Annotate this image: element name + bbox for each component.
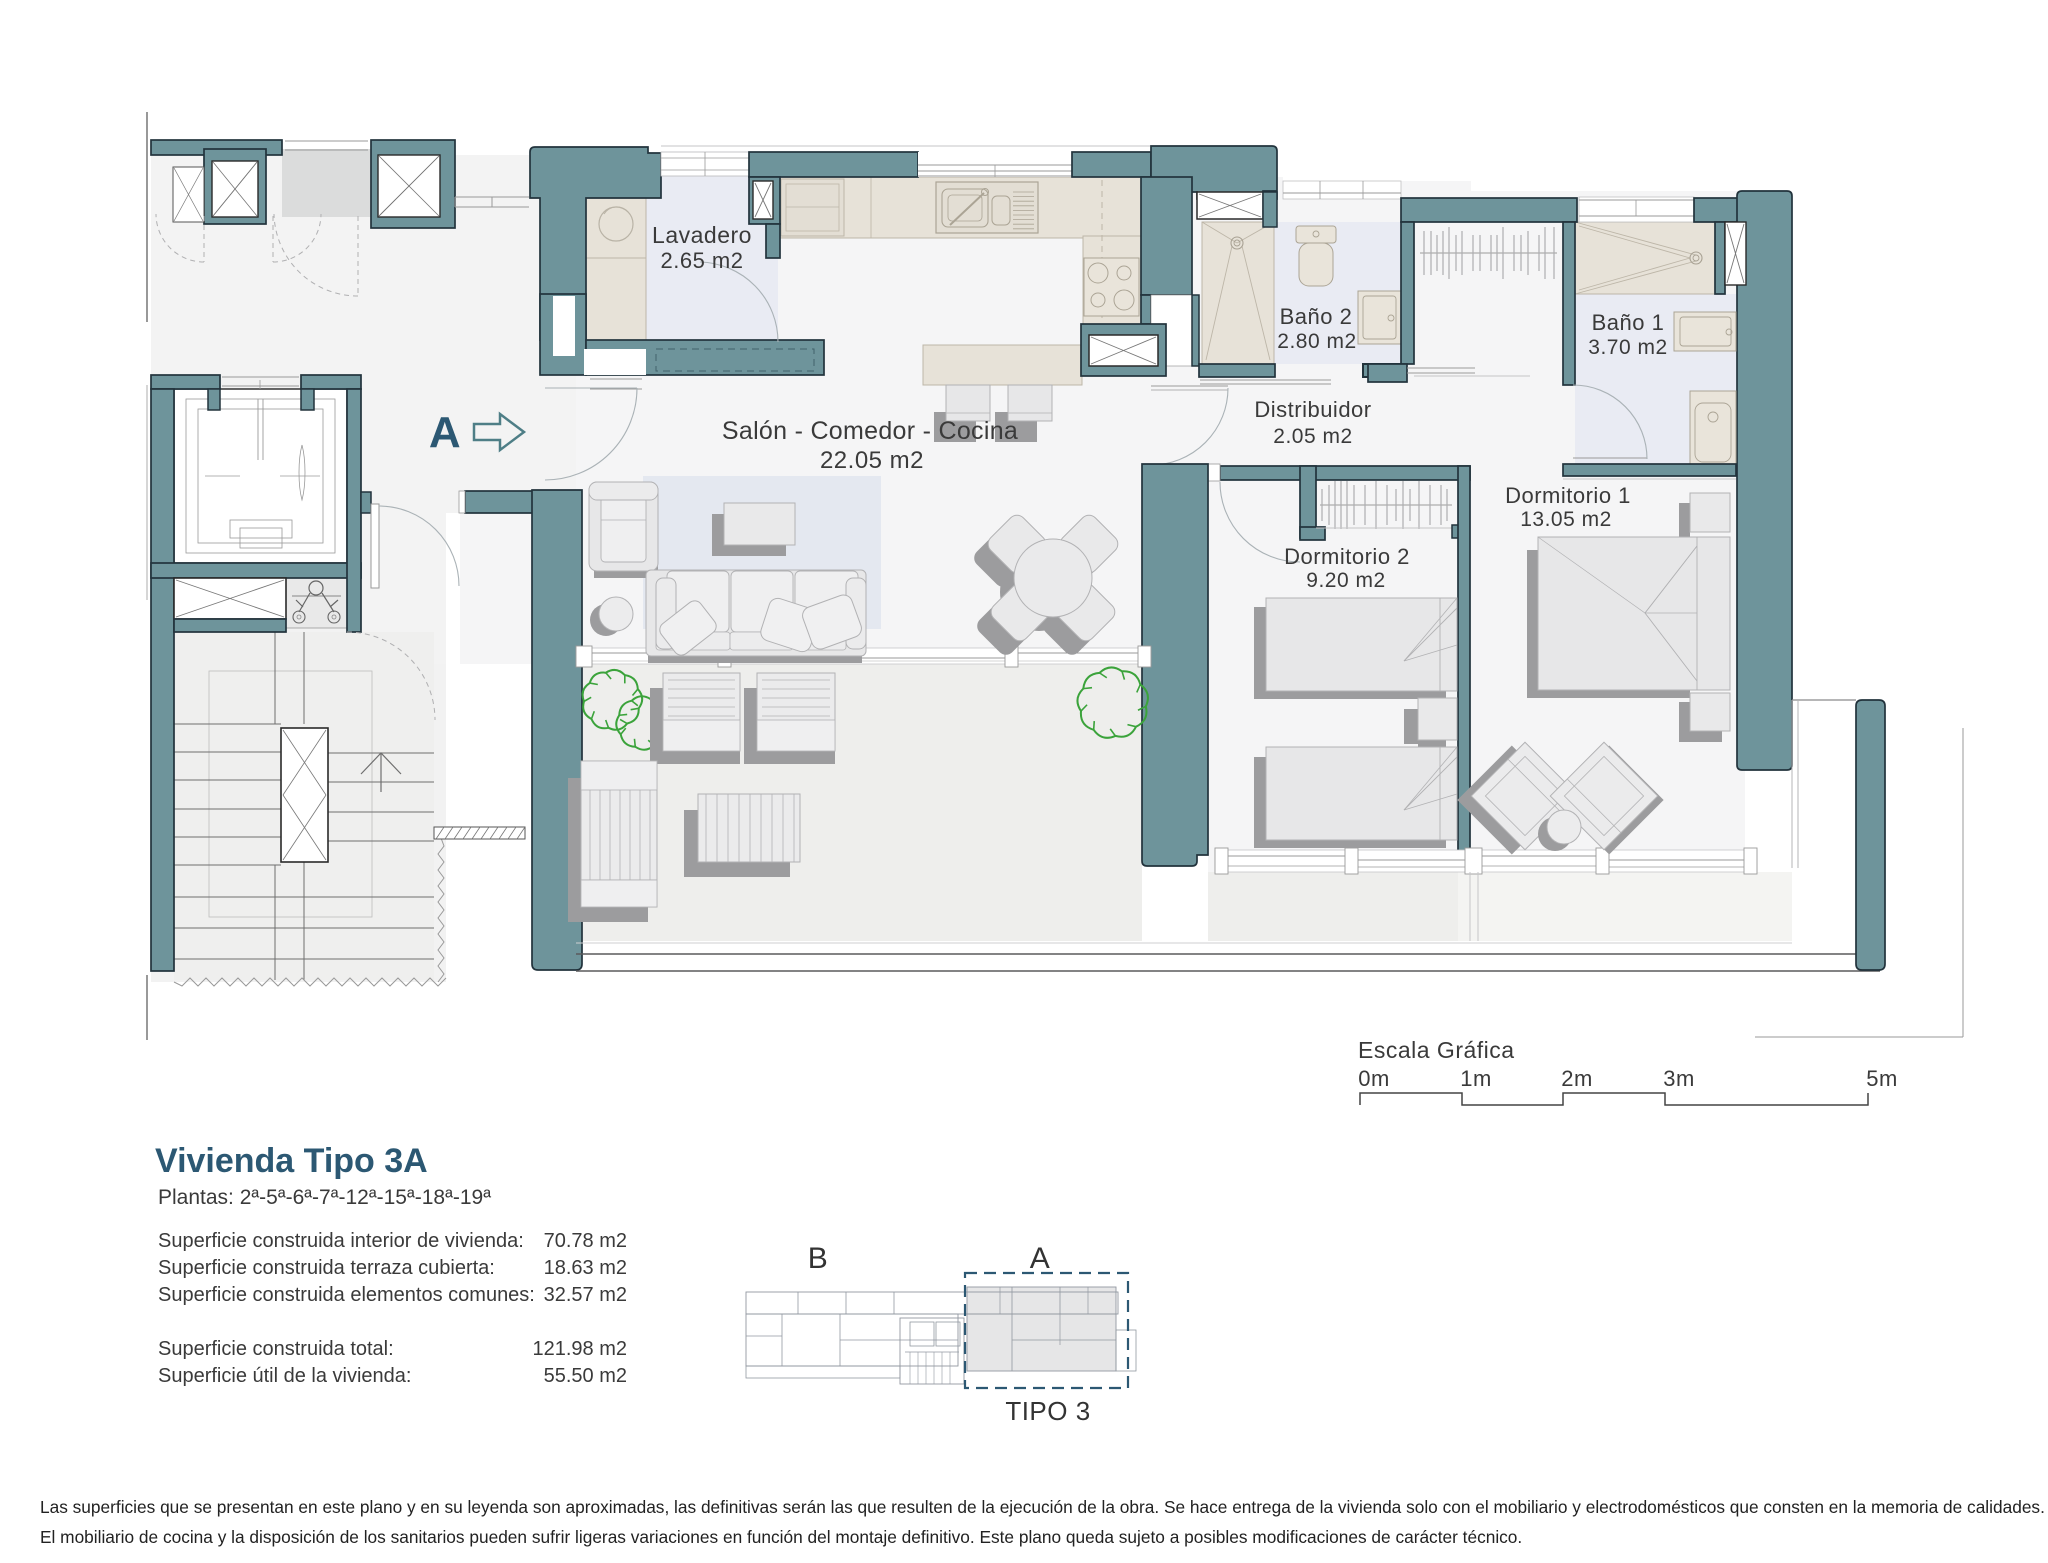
svg-text:Baño 1: Baño 1: [1592, 310, 1665, 335]
svg-text:Baño 2: Baño 2: [1280, 304, 1353, 329]
svg-text:Superficie construida total:: Superficie construida total:: [158, 1338, 394, 1360]
svg-text:2.65 m2: 2.65 m2: [661, 248, 744, 273]
svg-text:Superficie construida interior: Superficie construida interior de vivien…: [158, 1230, 524, 1252]
svg-text:Las superficies que se present: Las superficies que se presentan en este…: [40, 1497, 2045, 1517]
svg-text:2.05 m2: 2.05 m2: [1273, 425, 1352, 448]
svg-text:A: A: [429, 408, 461, 457]
svg-text:TIPO 3: TIPO 3: [1005, 1396, 1090, 1426]
svg-text:18.63 m2: 18.63 m2: [544, 1257, 627, 1279]
svg-text:9.20 m2: 9.20 m2: [1306, 569, 1385, 592]
svg-text:Distribuidor: Distribuidor: [1254, 397, 1371, 422]
svg-text:70.78 m2: 70.78 m2: [544, 1230, 627, 1252]
svg-text:Superficie construida terraza: Superficie construida terraza cubierta:: [158, 1257, 495, 1279]
svg-text:Plantas: 2ª-5ª-6ª-7ª-12ª-15ª-1: Plantas: 2ª-5ª-6ª-7ª-12ª-15ª-18ª-19ª: [158, 1186, 491, 1209]
svg-text:2.80 m2: 2.80 m2: [1277, 330, 1356, 353]
svg-text:B: B: [808, 1242, 829, 1275]
svg-text:5m: 5m: [1866, 1066, 1898, 1091]
svg-text:3.70 m2: 3.70 m2: [1588, 336, 1667, 359]
svg-text:Dormitorio 2: Dormitorio 2: [1284, 544, 1410, 569]
svg-text:22.05 m2: 22.05 m2: [820, 447, 924, 474]
svg-text:El mobiliario de cocina y la d: El mobiliario de cocina y la disposición…: [40, 1527, 1522, 1547]
svg-text:Superficie construida elemento: Superficie construida elementos comunes:: [158, 1284, 535, 1306]
svg-text:3m: 3m: [1663, 1066, 1695, 1091]
svg-text:32.57 m2: 32.57 m2: [544, 1284, 627, 1306]
svg-text:55.50 m2: 55.50 m2: [544, 1365, 627, 1387]
svg-text:Vivienda Tipo 3A: Vivienda Tipo 3A: [155, 1142, 428, 1180]
svg-text:A: A: [1030, 1242, 1051, 1275]
svg-text:0m: 0m: [1358, 1066, 1390, 1091]
svg-text:121.98 m2: 121.98 m2: [532, 1338, 627, 1360]
svg-text:Lavadero: Lavadero: [652, 222, 752, 248]
svg-text:Escala Gráfica: Escala Gráfica: [1358, 1037, 1515, 1063]
svg-text:13.05 m2: 13.05 m2: [1520, 508, 1612, 531]
svg-text:1m: 1m: [1460, 1066, 1492, 1091]
svg-text:Superficie útil de la vivienda: Superficie útil de la vivienda:: [158, 1365, 411, 1387]
svg-text:2m: 2m: [1561, 1066, 1593, 1091]
svg-text:Salón - Comedor - Cocina: Salón - Comedor - Cocina: [722, 417, 1018, 445]
svg-text:Dormitorio 1: Dormitorio 1: [1505, 483, 1631, 508]
